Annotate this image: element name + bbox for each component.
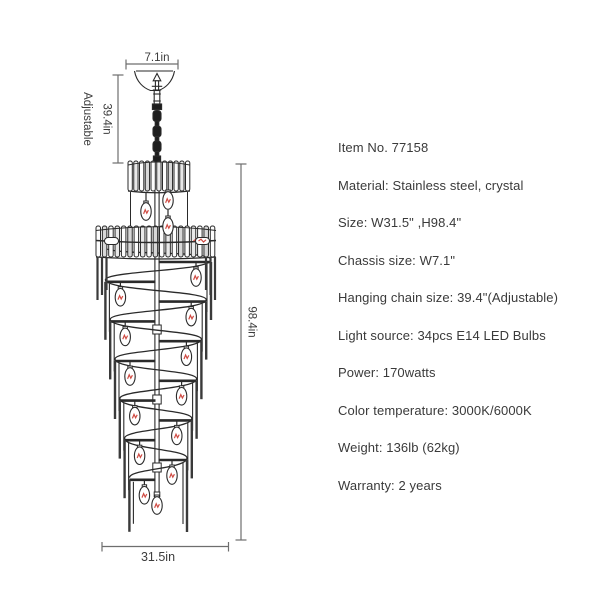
chain-collar [152, 104, 161, 110]
canopy [135, 71, 175, 91]
spec-material: Material: Stainless steel, crystal [338, 178, 588, 216]
spec-size: Size: W31.5" ,H98.4" [338, 215, 588, 253]
finial-shaft [155, 81, 158, 91]
chandelier-diagram: 7.1in Adjustable 39.4in 98.4in 31.5in [0, 0, 330, 600]
spec-item-number: Item No. 77158 [338, 140, 588, 178]
product-spec-sheet: 7.1in Adjustable 39.4in 98.4in 31.5in [0, 0, 600, 600]
spec-chassis-size: Chassis size: W7.1" [338, 253, 588, 291]
chain-link [153, 111, 161, 122]
chain-rod [154, 91, 160, 105]
adjustable-label: Adjustable [81, 92, 93, 146]
spec-light-source: Light source: 34pcs E14 LED Bulbs [338, 328, 588, 366]
spec-list: Item No. 77158 Material: Stainless steel… [338, 140, 588, 515]
chassis-width-label: 7.1in [145, 52, 170, 64]
total-height-label: 98.4in [246, 306, 258, 337]
spec-color-temperature: Color temperature: 3000K/6000K [338, 403, 588, 441]
spec-warranty: Warranty: 2 years [338, 478, 588, 516]
hanging-chain [152, 91, 161, 163]
spec-weight: Weight: 136lb (62kg) [338, 440, 588, 478]
spec-power: Power: 170watts [338, 365, 588, 403]
spec-chain-size: Hanging chain size: 39.4"(Adjustable) [338, 290, 588, 328]
chain-link [153, 126, 161, 137]
chain-length-label: 39.4in [101, 103, 113, 134]
chain-link [153, 141, 161, 152]
body-width-label: 31.5in [141, 550, 175, 564]
